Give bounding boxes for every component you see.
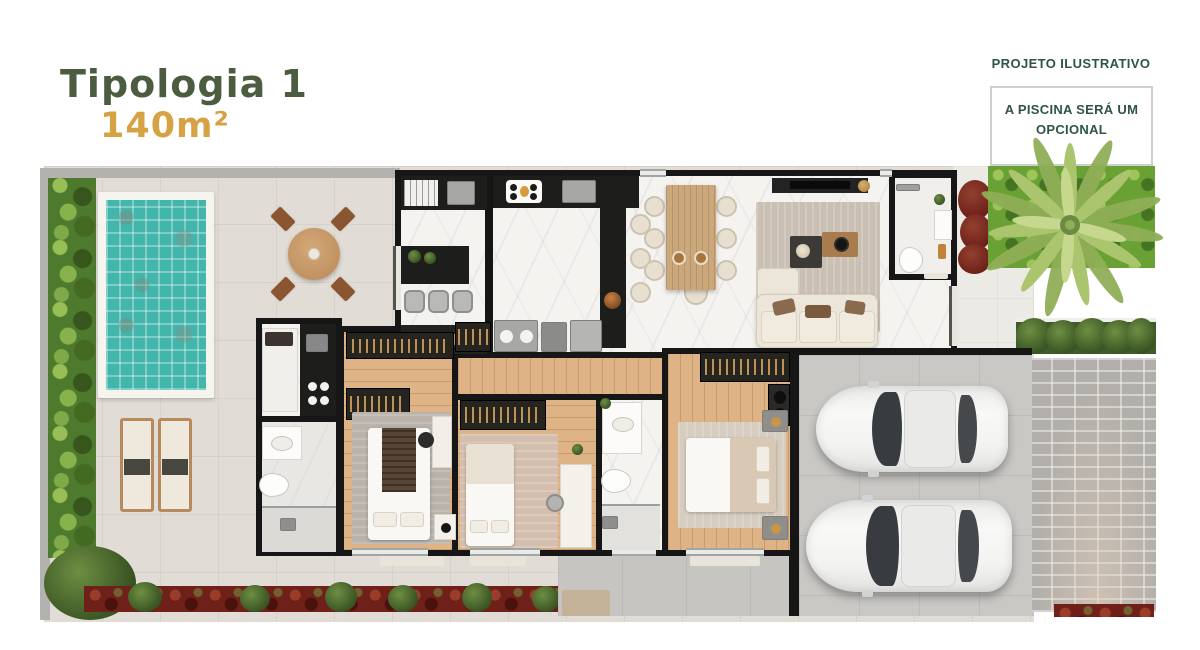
mug — [308, 382, 317, 391]
speaker — [774, 391, 786, 404]
gourmet-sink — [447, 181, 475, 205]
island-plant — [408, 250, 421, 263]
lot-wall-top — [40, 168, 400, 178]
window — [640, 169, 666, 177]
bedroom2-desk — [560, 464, 592, 548]
window — [352, 548, 428, 556]
bed — [466, 444, 514, 546]
shower-head — [602, 516, 618, 529]
car-roof — [901, 505, 957, 588]
lounger-towel — [162, 459, 188, 475]
dining-chair — [716, 196, 737, 217]
planter-bush — [1126, 318, 1156, 354]
washer-door — [520, 330, 533, 343]
placemat — [694, 251, 708, 265]
fruit-bowl — [604, 292, 621, 309]
table-centerpiece — [308, 248, 320, 260]
desk-chair — [546, 494, 564, 512]
towel — [938, 244, 946, 259]
decor-plant — [858, 180, 870, 192]
car-mirror — [862, 590, 873, 597]
linen-closet — [455, 322, 491, 352]
bathroom-vent — [896, 184, 920, 191]
coffee-machine — [265, 332, 293, 346]
flower-vase — [796, 244, 810, 258]
hanging-clothes — [465, 407, 541, 423]
pillow — [373, 512, 397, 527]
dining-table — [666, 185, 716, 290]
car-windshield — [872, 392, 903, 466]
mug — [308, 396, 317, 405]
coffee-table-dark — [790, 236, 822, 268]
nightstand — [762, 410, 788, 432]
kettle — [520, 186, 529, 197]
shower-floor — [262, 508, 336, 552]
kitchen-sink — [562, 180, 596, 203]
island-plant — [424, 252, 436, 264]
island-stool — [428, 290, 449, 313]
car-rear-window — [958, 395, 977, 462]
typology-area: 140m² — [100, 106, 230, 146]
cooktop — [506, 180, 542, 203]
nightstand — [762, 516, 788, 540]
washer-door — [500, 330, 513, 343]
bed — [686, 438, 776, 512]
basin — [271, 436, 293, 451]
car-windshield — [866, 506, 899, 585]
island-stool — [452, 290, 473, 313]
bed-runner — [382, 428, 416, 492]
door-mat — [690, 556, 760, 566]
bathroom-vanity — [934, 210, 952, 240]
gourmet-shelf — [404, 180, 438, 206]
outdoor-table — [288, 228, 340, 280]
burner — [530, 193, 537, 200]
driveway-flower-strip — [1054, 604, 1154, 617]
shower-head — [280, 518, 296, 531]
garage-side-wall — [789, 550, 798, 616]
espresso-machine — [306, 334, 328, 352]
round-tray — [834, 237, 849, 252]
hanging-clothes — [458, 329, 489, 345]
window — [880, 169, 892, 177]
hedge-left — [48, 178, 96, 558]
sun-lounger — [120, 418, 154, 512]
car — [816, 386, 1008, 472]
car-mirror — [868, 470, 879, 477]
hanging-clothes — [352, 339, 447, 353]
mug — [320, 382, 329, 391]
wardrobe — [460, 400, 546, 430]
car — [806, 500, 1012, 592]
pillow — [400, 512, 424, 527]
hanging-clothes — [350, 396, 406, 413]
coffee-table-wood — [822, 232, 858, 257]
utility-cabinet — [300, 324, 336, 416]
patio-glass-door — [393, 246, 401, 310]
burner — [510, 184, 517, 191]
desk-chair — [418, 432, 434, 448]
bathroom-plant — [600, 398, 611, 409]
door-mat — [380, 556, 444, 566]
door-mat — [562, 590, 610, 616]
dining-chair — [716, 260, 737, 281]
sofa-cushion — [761, 311, 797, 343]
dining-chair — [716, 228, 737, 249]
window — [686, 548, 764, 556]
lamp — [771, 417, 781, 427]
paver-driveway — [1028, 358, 1156, 612]
basin — [612, 417, 634, 432]
room-hallway — [452, 352, 668, 400]
hanging-clothes — [705, 359, 784, 375]
car-roof — [904, 390, 956, 467]
bath-mat — [924, 273, 948, 279]
throw-pillow — [805, 305, 831, 318]
pillow — [756, 446, 770, 472]
living-glass-door — [949, 286, 958, 346]
floor-plan-scene: Tipologia 1 140m² PROJETO ILUSTRATIVO A … — [0, 0, 1200, 650]
washer-dryer — [494, 320, 538, 352]
garden-bush — [388, 585, 418, 612]
palm-tree — [975, 133, 1165, 317]
laundry-cabinet — [570, 320, 602, 352]
typology-title: Tipologia 1 — [60, 62, 308, 106]
pillow — [491, 520, 509, 533]
car-mirror — [868, 381, 879, 388]
laundry-cabinet — [541, 322, 567, 352]
pillow — [756, 478, 770, 504]
throw-pillow — [844, 300, 866, 316]
bath1-vanity — [262, 426, 302, 460]
garden-bush — [128, 582, 162, 612]
mug — [320, 396, 329, 405]
garden-bush — [532, 586, 560, 612]
garden-bush — [325, 582, 357, 612]
swimming-pool — [106, 200, 206, 390]
burner — [530, 184, 537, 191]
garden-bush — [462, 583, 492, 612]
burner — [510, 193, 517, 200]
tv-screen — [790, 181, 850, 189]
dining-chair — [644, 196, 665, 217]
car-rear-window — [958, 510, 979, 582]
lounger-towel — [124, 459, 150, 475]
garden-bush — [240, 585, 270, 612]
bed-blanket — [466, 444, 514, 484]
dining-chair — [644, 228, 665, 249]
door-mat — [470, 556, 526, 566]
sofa — [756, 294, 878, 348]
sun-lounger — [158, 418, 192, 512]
knob — [441, 523, 451, 533]
bath2-vanity — [602, 402, 642, 454]
lamp — [771, 524, 781, 534]
illustrative-project-note: PROJETO ILUSTRATIVO — [971, 56, 1171, 71]
desk-plant — [572, 444, 583, 455]
peninsula-stool — [630, 282, 651, 303]
bedroom1-desk — [432, 416, 452, 468]
nightstand — [434, 514, 456, 540]
placemat — [672, 251, 686, 265]
wardrobe — [700, 352, 790, 382]
wardrobe — [346, 332, 454, 359]
kitchen-peninsula — [600, 208, 626, 348]
island-stool — [404, 290, 425, 313]
car-mirror — [862, 495, 873, 502]
dining-chair — [644, 260, 665, 281]
bathroom-plant — [934, 194, 945, 205]
pillow — [470, 520, 488, 533]
sofa-cushion — [839, 311, 875, 343]
window — [470, 548, 540, 556]
